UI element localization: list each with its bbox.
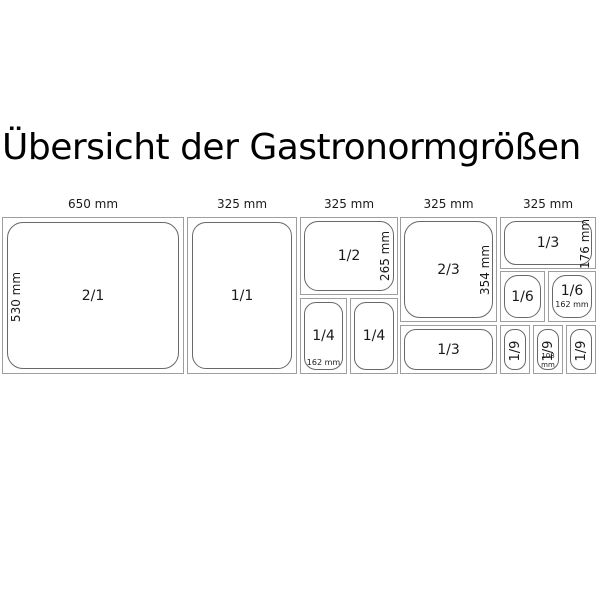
gn-1-6-depth-label: 162 mm <box>555 300 588 310</box>
gn-1-4-cell-right: 1/4 <box>350 298 398 374</box>
gn-1-6-pan-right: 1/6 162 mm <box>552 275 592 318</box>
gn-1-1-cell: 1/1 <box>187 217 297 374</box>
gn-1-6-label-left: 1/6 <box>511 289 534 305</box>
gn-2-3-height-label: 354 mm <box>478 235 492 305</box>
gn-1-9-cell-3: 1/9 <box>566 325 596 374</box>
gn-1-1-pan: 1/1 <box>192 222 292 369</box>
gn-1-6-cell-right: 1/6 162 mm <box>548 271 596 322</box>
gn-2-1-height-label: 530 mm <box>9 262 23 332</box>
gn-2-3-cell: 2/3 354 mm <box>400 217 497 322</box>
gn-1-6-cell-left: 1/6 <box>500 271 545 322</box>
gn-1-9-label-3: 1/9 <box>574 336 590 366</box>
gn-1-4-label-left: 1/4 <box>312 328 335 344</box>
page-title: Übersicht der Gastronormgrößen <box>2 126 581 170</box>
width-label-col3: 325 mm <box>300 197 398 212</box>
gn-2-1-pan: 2/1 <box>7 222 179 369</box>
gn-1-4-depth-label: 162 mm <box>301 358 346 367</box>
gn-1-9-cell-1: 1/9 <box>500 325 530 374</box>
width-label-1-1: 325 mm <box>187 197 297 212</box>
width-label-2-1: 650 mm <box>2 197 184 212</box>
gn-1-6-label-right: 1/6 <box>561 283 584 299</box>
gn-1-6-pan-left: 1/6 <box>504 275 541 318</box>
gastronorm-size-diagram: Übersicht der Gastronormgrößen 650 mm 32… <box>0 0 600 600</box>
gn-1-3-height-label: 176 mm <box>578 219 592 269</box>
gn-2-1-cell: 2/1 530 mm <box>2 217 184 374</box>
width-label-col5: 325 mm <box>500 197 596 212</box>
gn-1-9-label-1: 1/9 <box>508 336 524 366</box>
gn-1-2-label: 1/2 <box>338 248 361 264</box>
gn-1-4-pan-right: 1/4 <box>354 302 394 370</box>
gn-1-2-height-label: 265 mm <box>378 221 392 291</box>
gn-1-3-cell-col5: 1/3 176 mm <box>500 217 596 269</box>
gn-1-3-pan-col4: 1/3 <box>404 329 493 370</box>
gn-2-3-label: 2/3 <box>437 262 460 278</box>
gn-1-3-cell-col4: 1/3 <box>400 325 497 374</box>
gn-1-2-cell: 1/2 265 mm <box>300 217 398 295</box>
gn-1-9-cell-2: 1/9 108 mm <box>533 325 563 374</box>
width-label-col4: 325 mm <box>400 197 497 212</box>
gn-1-3-label-col4: 1/3 <box>437 342 460 358</box>
gn-1-4-cell-left: 1/4 162 mm <box>300 298 347 374</box>
gn-1-9-depth-label: 108 mm <box>534 352 562 370</box>
gn-1-4-label-right: 1/4 <box>363 328 386 344</box>
gn-2-1-label: 2/1 <box>82 288 105 304</box>
gn-1-1-label: 1/1 <box>231 288 254 304</box>
gn-1-3-label-col5: 1/3 <box>537 235 560 251</box>
